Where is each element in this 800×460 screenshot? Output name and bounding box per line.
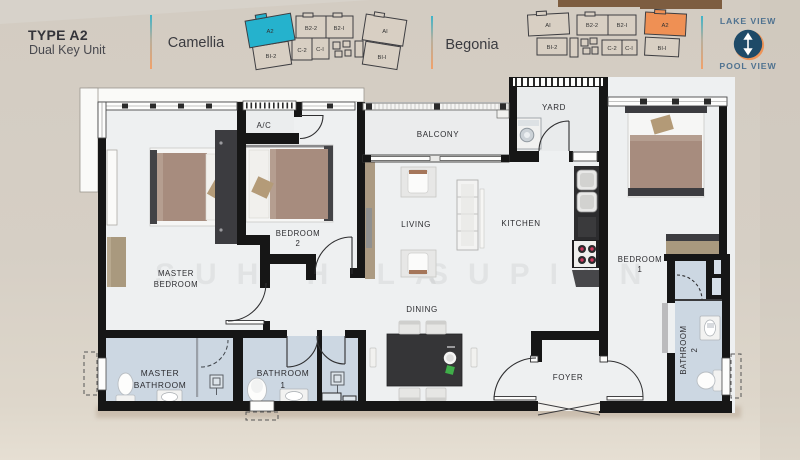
svg-text:BI-2: BI-2 — [266, 54, 277, 60]
svg-text:C-2: C-2 — [297, 48, 306, 54]
svg-text:BALCONY: BALCONY — [417, 130, 459, 139]
svg-text:BEDROOM: BEDROOM — [618, 255, 663, 264]
svg-text:BEDROOM: BEDROOM — [276, 229, 321, 238]
svg-text:DINING: DINING — [406, 305, 438, 314]
svg-text:FOYER: FOYER — [553, 373, 584, 382]
svg-text:Camellia: Camellia — [168, 35, 225, 51]
svg-text:AI: AI — [545, 23, 551, 29]
svg-text:B2-I: B2-I — [617, 23, 628, 29]
svg-text:BI-I: BI-I — [377, 55, 386, 61]
svg-text:BATHROOM: BATHROOM — [679, 325, 688, 374]
svg-text:BATHROOM: BATHROOM — [134, 380, 187, 390]
svg-text:1: 1 — [638, 265, 643, 274]
svg-text:2: 2 — [690, 348, 699, 353]
svg-text:MASTER: MASTER — [158, 269, 194, 278]
svg-text:A2: A2 — [661, 23, 668, 29]
svg-text:POOL VIEW: POOL VIEW — [719, 61, 776, 71]
svg-text:Dual Key Unit: Dual Key Unit — [29, 43, 106, 57]
svg-text:MASTER: MASTER — [141, 368, 180, 378]
svg-text:BEDROOM: BEDROOM — [154, 280, 199, 289]
svg-text:B2-I: B2-I — [334, 26, 345, 32]
svg-text:LAKE VIEW: LAKE VIEW — [720, 16, 776, 26]
svg-text:C-I: C-I — [316, 47, 324, 53]
svg-text:AI: AI — [382, 29, 388, 35]
svg-text:KITCHEN: KITCHEN — [501, 219, 540, 228]
svg-text:LIVING: LIVING — [401, 220, 431, 229]
svg-text:B2-2: B2-2 — [305, 26, 317, 32]
svg-text:YARD: YARD — [542, 103, 566, 112]
svg-text:TYPE A2: TYPE A2 — [28, 27, 88, 43]
svg-text:2: 2 — [296, 239, 301, 248]
svg-text:BATHROOM: BATHROOM — [257, 368, 310, 378]
svg-text:BI-I: BI-I — [657, 46, 666, 52]
svg-text:Begonia: Begonia — [445, 37, 499, 53]
svg-text:A2: A2 — [266, 29, 273, 35]
svg-text:1: 1 — [280, 380, 285, 390]
svg-text:A/C: A/C — [257, 121, 272, 130]
svg-text:BI-2: BI-2 — [547, 45, 558, 51]
svg-text:C-2: C-2 — [607, 46, 616, 52]
svg-text:B2-2: B2-2 — [586, 23, 598, 29]
svg-text:C-I: C-I — [625, 46, 633, 52]
